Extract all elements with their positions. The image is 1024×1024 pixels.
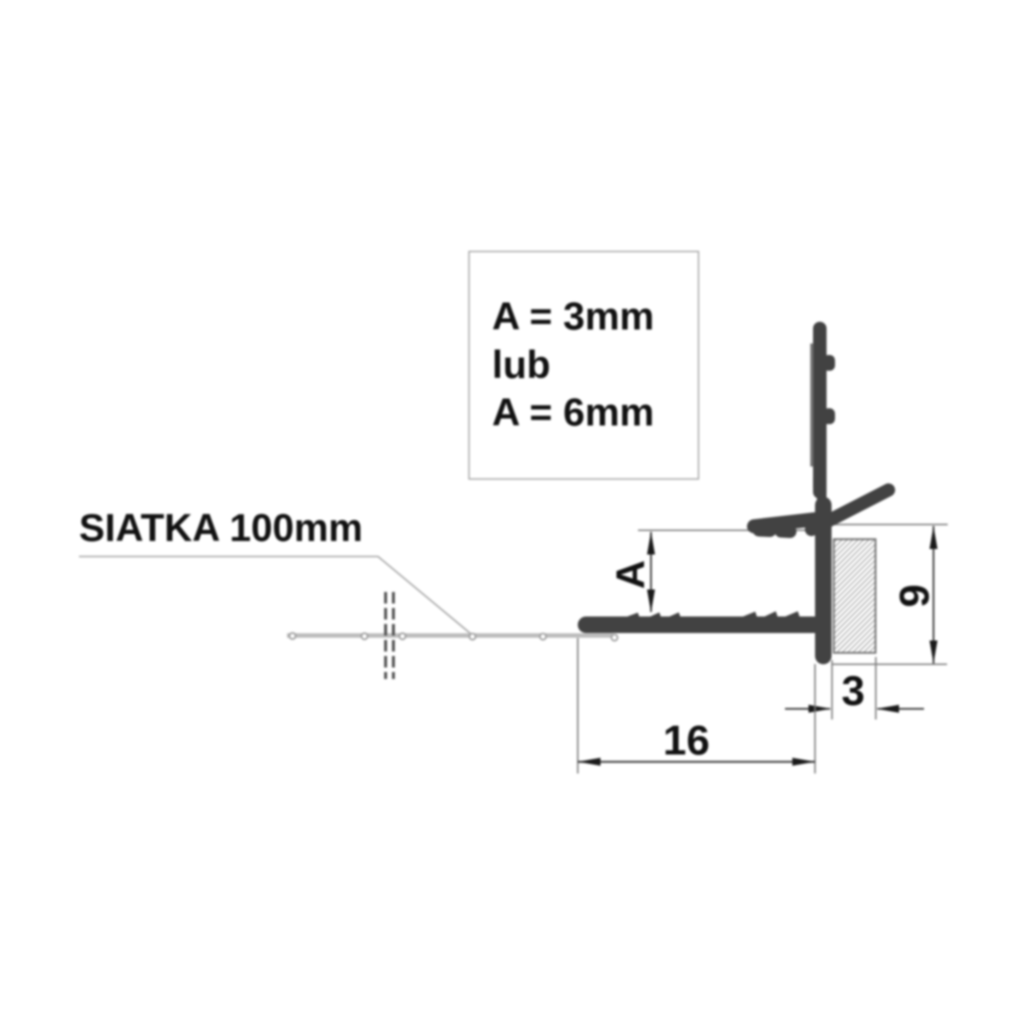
svg-text:9: 9 [891,584,938,607]
svg-text:3: 3 [842,667,865,714]
svg-text:16: 16 [663,717,710,764]
svg-text:A: A [609,560,653,589]
svg-text:A = 3mm: A = 3mm [492,296,654,339]
svg-text:A = 6mm: A = 6mm [492,392,654,435]
svg-text:SIATKA 100mm: SIATKA 100mm [79,507,363,550]
svg-text:lub: lub [492,344,550,387]
